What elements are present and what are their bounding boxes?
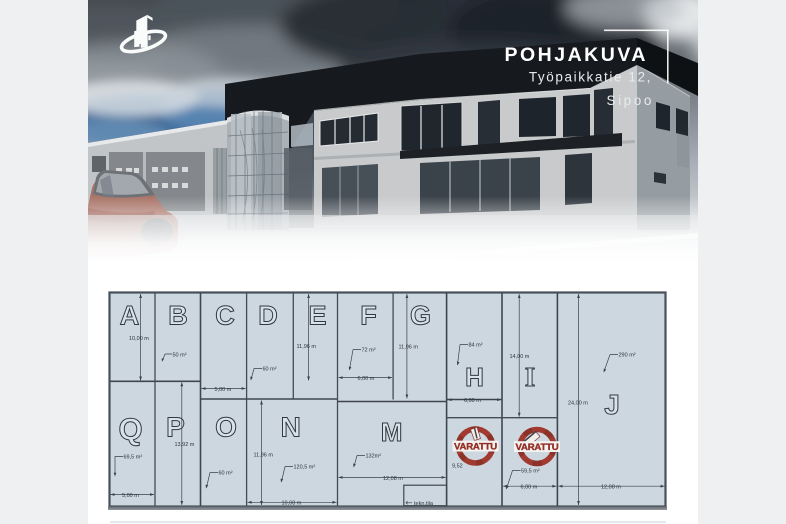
svg-text:11,96 m: 11,96 m <box>297 344 317 350</box>
svg-text:60 m²: 60 m² <box>263 367 277 373</box>
svg-text:60 m²: 60 m² <box>219 471 233 477</box>
svg-text:D: D <box>258 301 278 331</box>
svg-text:9,52: 9,52 <box>452 464 463 470</box>
svg-text:290 m²: 290 m² <box>619 353 636 359</box>
svg-text:5,00 m: 5,00 m <box>122 493 139 499</box>
svg-text:14,00 m: 14,00 m <box>510 354 530 360</box>
svg-text:A: A <box>120 301 140 331</box>
svg-text:6,00 m: 6,00 m <box>464 398 481 404</box>
svg-text:I: I <box>525 362 536 392</box>
svg-text:F: F <box>360 301 377 331</box>
svg-text:24,00 m: 24,00 m <box>568 401 588 407</box>
svg-text:50 m²: 50 m² <box>173 353 187 359</box>
svg-text:10,08 m: 10,08 m <box>282 501 302 507</box>
svg-text:N: N <box>281 412 301 443</box>
svg-text:12,08 m: 12,08 m <box>601 485 621 491</box>
svg-text:H: H <box>465 362 484 392</box>
svg-text:84 m²: 84 m² <box>469 343 483 349</box>
svg-text:59,5 m²: 59,5 m² <box>521 469 540 475</box>
svg-text:B: B <box>168 301 188 331</box>
svg-text:132m²: 132m² <box>366 454 382 460</box>
svg-text:12,08 m: 12,08 m <box>383 476 403 482</box>
svg-text:VARATTU: VARATTU <box>515 442 558 453</box>
svg-text:72 m²: 72 m² <box>362 348 376 354</box>
svg-text:69,5 m²: 69,5 m² <box>124 455 143 461</box>
svg-text:E: E <box>308 301 326 331</box>
svg-text:C: C <box>215 301 235 331</box>
svg-text:M: M <box>381 417 403 447</box>
svg-text:6,00 m: 6,00 m <box>521 485 538 491</box>
svg-text:11,96 m: 11,96 m <box>399 345 419 351</box>
svg-text:11,96 m: 11,96 m <box>254 453 274 459</box>
svg-text:VARATTU: VARATTU <box>454 442 497 453</box>
svg-text:G: G <box>410 301 431 331</box>
svg-text:J: J <box>604 389 620 420</box>
svg-text:6,00 m: 6,00 m <box>358 376 375 382</box>
svg-text:10,00 m: 10,00 m <box>129 336 149 342</box>
svg-text:tekn.tila: tekn.tila <box>414 501 434 507</box>
svg-text:Q: Q <box>118 412 142 447</box>
svg-text:5,00 m: 5,00 m <box>215 387 232 393</box>
svg-text:120,5 m²: 120,5 m² <box>294 465 316 471</box>
svg-text:13,92 m: 13,92 m <box>175 442 195 448</box>
svg-text:O: O <box>215 412 237 443</box>
